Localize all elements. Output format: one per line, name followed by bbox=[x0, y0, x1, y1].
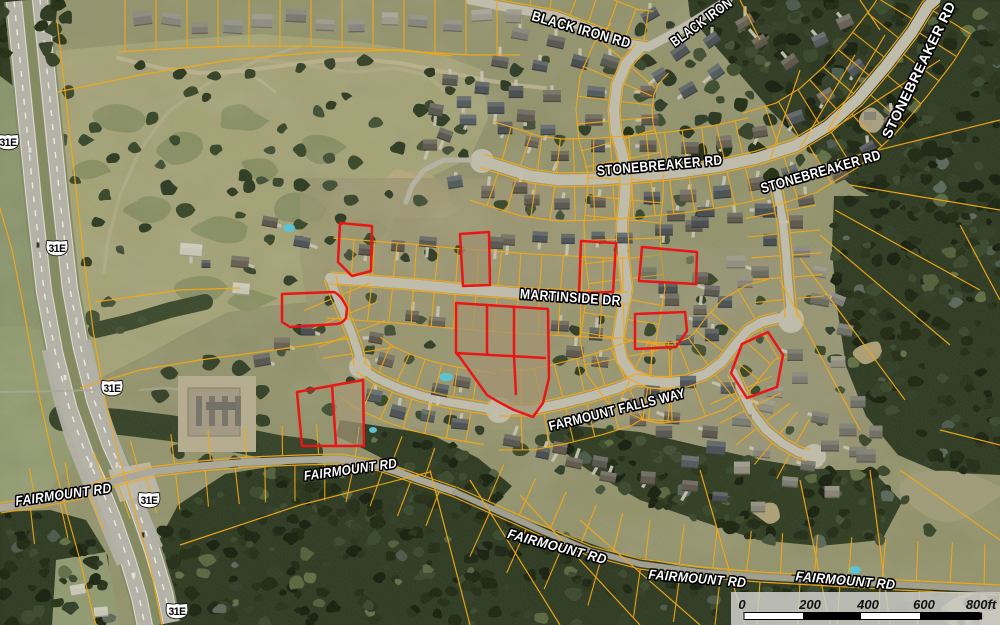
svg-text:200: 200 bbox=[798, 597, 821, 612]
svg-text:0: 0 bbox=[738, 597, 746, 612]
svg-text:31E: 31E bbox=[104, 383, 121, 395]
svg-text:800ft: 800ft bbox=[966, 597, 997, 612]
svg-text:31E: 31E bbox=[0, 137, 17, 149]
svg-text:400: 400 bbox=[856, 597, 879, 612]
svg-text:31E: 31E bbox=[49, 243, 66, 255]
svg-text:31E: 31E bbox=[169, 606, 186, 618]
svg-text:600: 600 bbox=[913, 597, 935, 612]
svg-text:31E: 31E bbox=[141, 495, 158, 507]
